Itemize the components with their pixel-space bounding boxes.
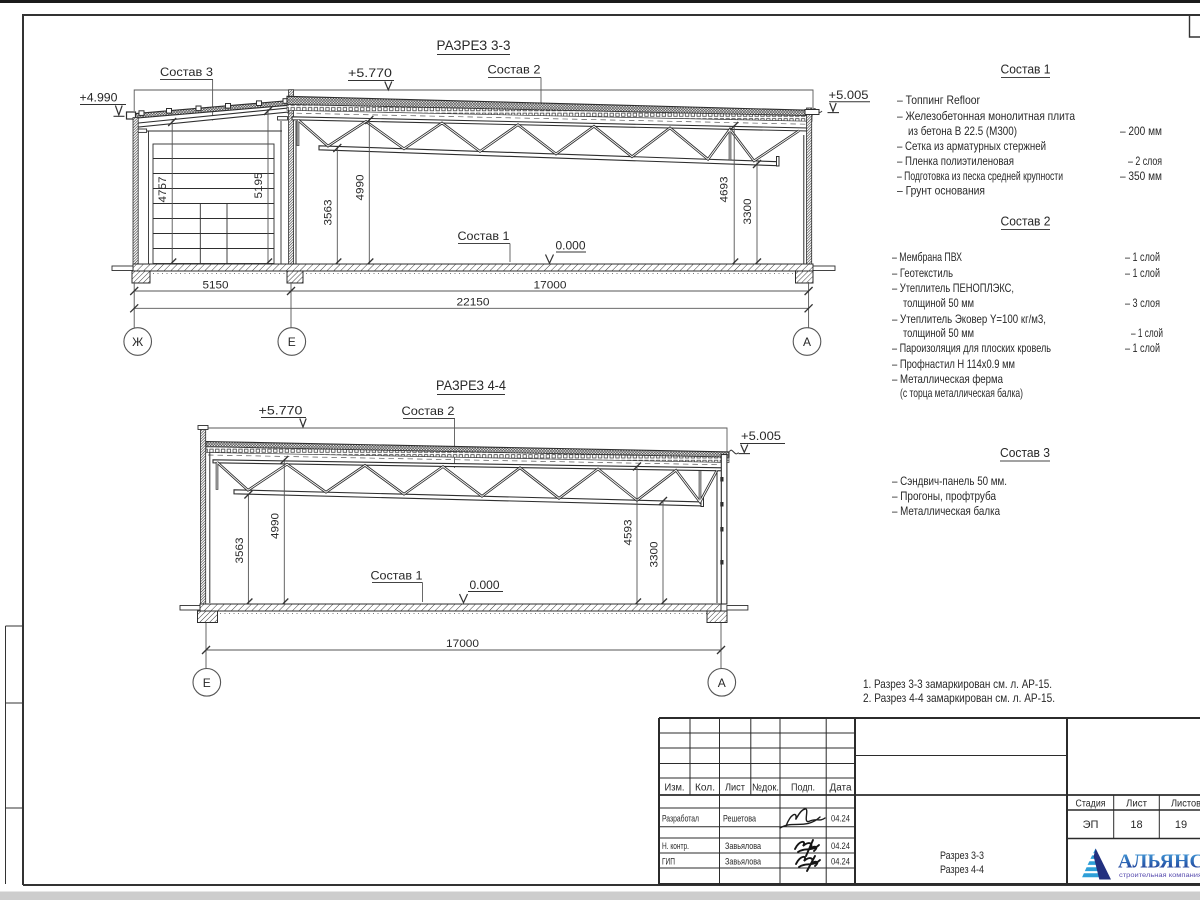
svg-text:– Металлическая ферма: – Металлическая ферма [892, 372, 1003, 386]
svg-text:3563: 3563 [234, 538, 246, 564]
svg-text:+5.770: +5.770 [348, 66, 392, 80]
svg-text:Подп.: Подп. [791, 783, 815, 794]
svg-text:04.24: 04.24 [831, 857, 850, 868]
svg-text:Ж: Ж [132, 335, 143, 349]
svg-text:Кол.: Кол. [695, 783, 715, 794]
svg-text:из бетона В 22.5 (М300): из бетона В 22.5 (М300) [908, 124, 1017, 138]
svg-text:4990: 4990 [270, 513, 282, 539]
svg-text:– 350 мм: – 350 мм [1120, 169, 1162, 183]
svg-text:3563: 3563 [323, 200, 335, 226]
svg-text:– Сетка из арматурных стержней: – Сетка из арматурных стержней [897, 139, 1046, 153]
svg-text:РАЗРЕЗ 4-4: РАЗРЕЗ 4-4 [436, 378, 506, 393]
svg-text:Изм.: Изм. [665, 783, 685, 794]
svg-text:– Пароизоляция для плоских кро: – Пароизоляция для плоских кровель [892, 341, 1051, 355]
svg-text:3300: 3300 [648, 542, 660, 568]
svg-text:Состав 2: Состав 2 [402, 404, 455, 418]
svg-text:3300: 3300 [742, 199, 754, 225]
svg-text:толщиной 50 мм: толщиной 50 мм [903, 326, 974, 340]
svg-text:Разрез 3-3: Разрез 3-3 [940, 850, 984, 862]
svg-text:АЛЬЯНС: АЛЬЯНС [1118, 851, 1200, 873]
svg-text:– Сэндвич-панель 50 мм.: – Сэндвич-панель 50 мм. [892, 474, 1007, 488]
svg-text:Состав 3: Состав 3 [160, 65, 213, 79]
svg-text:4990: 4990 [355, 175, 367, 201]
svg-text:– Пленка полиэтиленовая: – Пленка полиэтиленовая [897, 154, 1014, 168]
svg-text:– 200 мм: – 200 мм [1120, 124, 1162, 138]
svg-text:18: 18 [1130, 819, 1142, 831]
svg-text:строительная компания: строительная компания [1119, 872, 1200, 879]
svg-text:+5.005: +5.005 [741, 429, 781, 443]
svg-text:4693: 4693 [719, 177, 731, 203]
svg-text:17000: 17000 [534, 280, 567, 292]
svg-text:4757: 4757 [157, 177, 169, 203]
svg-text:– Железобетонная монолитная п: – Железобетонная монолитная плита [897, 109, 1075, 123]
svg-text:– 1 слой: – 1 слой [1125, 341, 1160, 355]
svg-text:РАЗРЕЗ 3-3: РАЗРЕЗ 3-3 [437, 38, 511, 53]
svg-text:– Мембрана ПВХ: – Мембрана ПВХ [892, 250, 962, 264]
svg-text:– 2 слоя: – 2 слоя [1128, 154, 1162, 168]
svg-text:04.24: 04.24 [831, 814, 850, 825]
svg-text:Лист: Лист [1126, 799, 1147, 810]
svg-text:2. Разрез 4-4 замаркирован см.: 2. Разрез 4-4 замаркирован см. л. АР-15. [863, 691, 1055, 705]
svg-text:5195: 5195 [253, 173, 265, 199]
svg-text:– 1 слой: – 1 слой [1125, 250, 1160, 264]
svg-text:– Прогоны, профтруба: – Прогоны, профтруба [892, 489, 996, 503]
svg-text:(с торца металлическая балка): (с торца металлическая балка) [900, 386, 1023, 400]
svg-text:Состав 3: Состав 3 [1000, 446, 1050, 460]
svg-text:17000: 17000 [446, 638, 479, 650]
svg-text:Состав 1: Состав 1 [371, 569, 423, 583]
svg-text:Е: Е [203, 676, 211, 690]
svg-text:Состав 2: Состав 2 [1001, 215, 1051, 229]
svg-text:1. Разрез 3-3 замаркирован см.: 1. Разрез 3-3 замаркирован см. л. АР-15. [863, 677, 1052, 691]
svg-text:А: А [803, 335, 811, 349]
svg-text:Н. контр.: Н. контр. [662, 841, 689, 852]
svg-text:Решетова: Решетова [723, 814, 757, 825]
svg-text:Разрез 4-4: Разрез 4-4 [940, 864, 984, 876]
svg-text:4593: 4593 [622, 520, 634, 546]
svg-text:+5.005: +5.005 [829, 88, 869, 102]
svg-text:– 1 слой: – 1 слой [1125, 266, 1160, 280]
svg-text:– Утеплитель Эковер Y=100 кг/м: – Утеплитель Эковер Y=100 кг/м3, [892, 312, 1046, 326]
svg-text:Состав 2: Состав 2 [488, 63, 541, 77]
svg-text:– Металлическая балка: – Металлическая балка [892, 504, 1000, 518]
svg-text:Дата: Дата [830, 783, 852, 794]
svg-text:0.000: 0.000 [470, 578, 500, 592]
svg-text:– 3 слоя: – 3 слоя [1125, 296, 1160, 310]
svg-text:Стадия: Стадия [1076, 799, 1106, 810]
svg-text:– Профнастил Н 114х0.9 мм: – Профнастил Н 114х0.9 мм [892, 357, 1015, 371]
svg-text:– Геотекстиль: – Геотекстиль [892, 266, 953, 280]
svg-text:№док.: №док. [752, 783, 779, 794]
svg-text:+5.770: +5.770 [259, 404, 303, 418]
svg-text:– Грунт основания: – Грунт основания [897, 184, 985, 198]
svg-text:5150: 5150 [203, 280, 229, 292]
svg-text:19: 19 [1175, 819, 1187, 831]
svg-text:толщиной 50 мм: толщиной 50 мм [903, 296, 974, 310]
svg-text:Листов: Листов [1171, 799, 1200, 810]
svg-text:Состав 1: Состав 1 [458, 229, 510, 243]
svg-text:А: А [718, 676, 726, 690]
svg-text:– Подготовка из песка средней: – Подготовка из песка средней крупности [897, 169, 1063, 183]
svg-text:22150: 22150 [457, 297, 490, 309]
svg-text:– Топпинг Refloor: – Топпинг Refloor [897, 93, 980, 107]
svg-text:– Утеплитель ПЕНОПЛЭКС,: – Утеплитель ПЕНОПЛЭКС, [892, 281, 1014, 295]
svg-text:Лист: Лист [725, 783, 745, 794]
svg-text:+4.990: +4.990 [80, 91, 118, 105]
svg-text:Е: Е [288, 335, 296, 349]
svg-text:Завьялова: Завьялова [725, 841, 762, 852]
svg-text:– 1 слой: – 1 слой [1131, 326, 1163, 340]
svg-text:Состав 1: Состав 1 [1001, 63, 1051, 77]
svg-text:ЭП: ЭП [1083, 819, 1099, 831]
svg-text:0.000: 0.000 [556, 239, 586, 253]
svg-text:ГИП: ГИП [662, 857, 675, 868]
svg-text:Разработал: Разработал [662, 814, 699, 825]
svg-text:Завьялова: Завьялова [725, 857, 762, 868]
svg-text:04.24: 04.24 [831, 841, 850, 852]
